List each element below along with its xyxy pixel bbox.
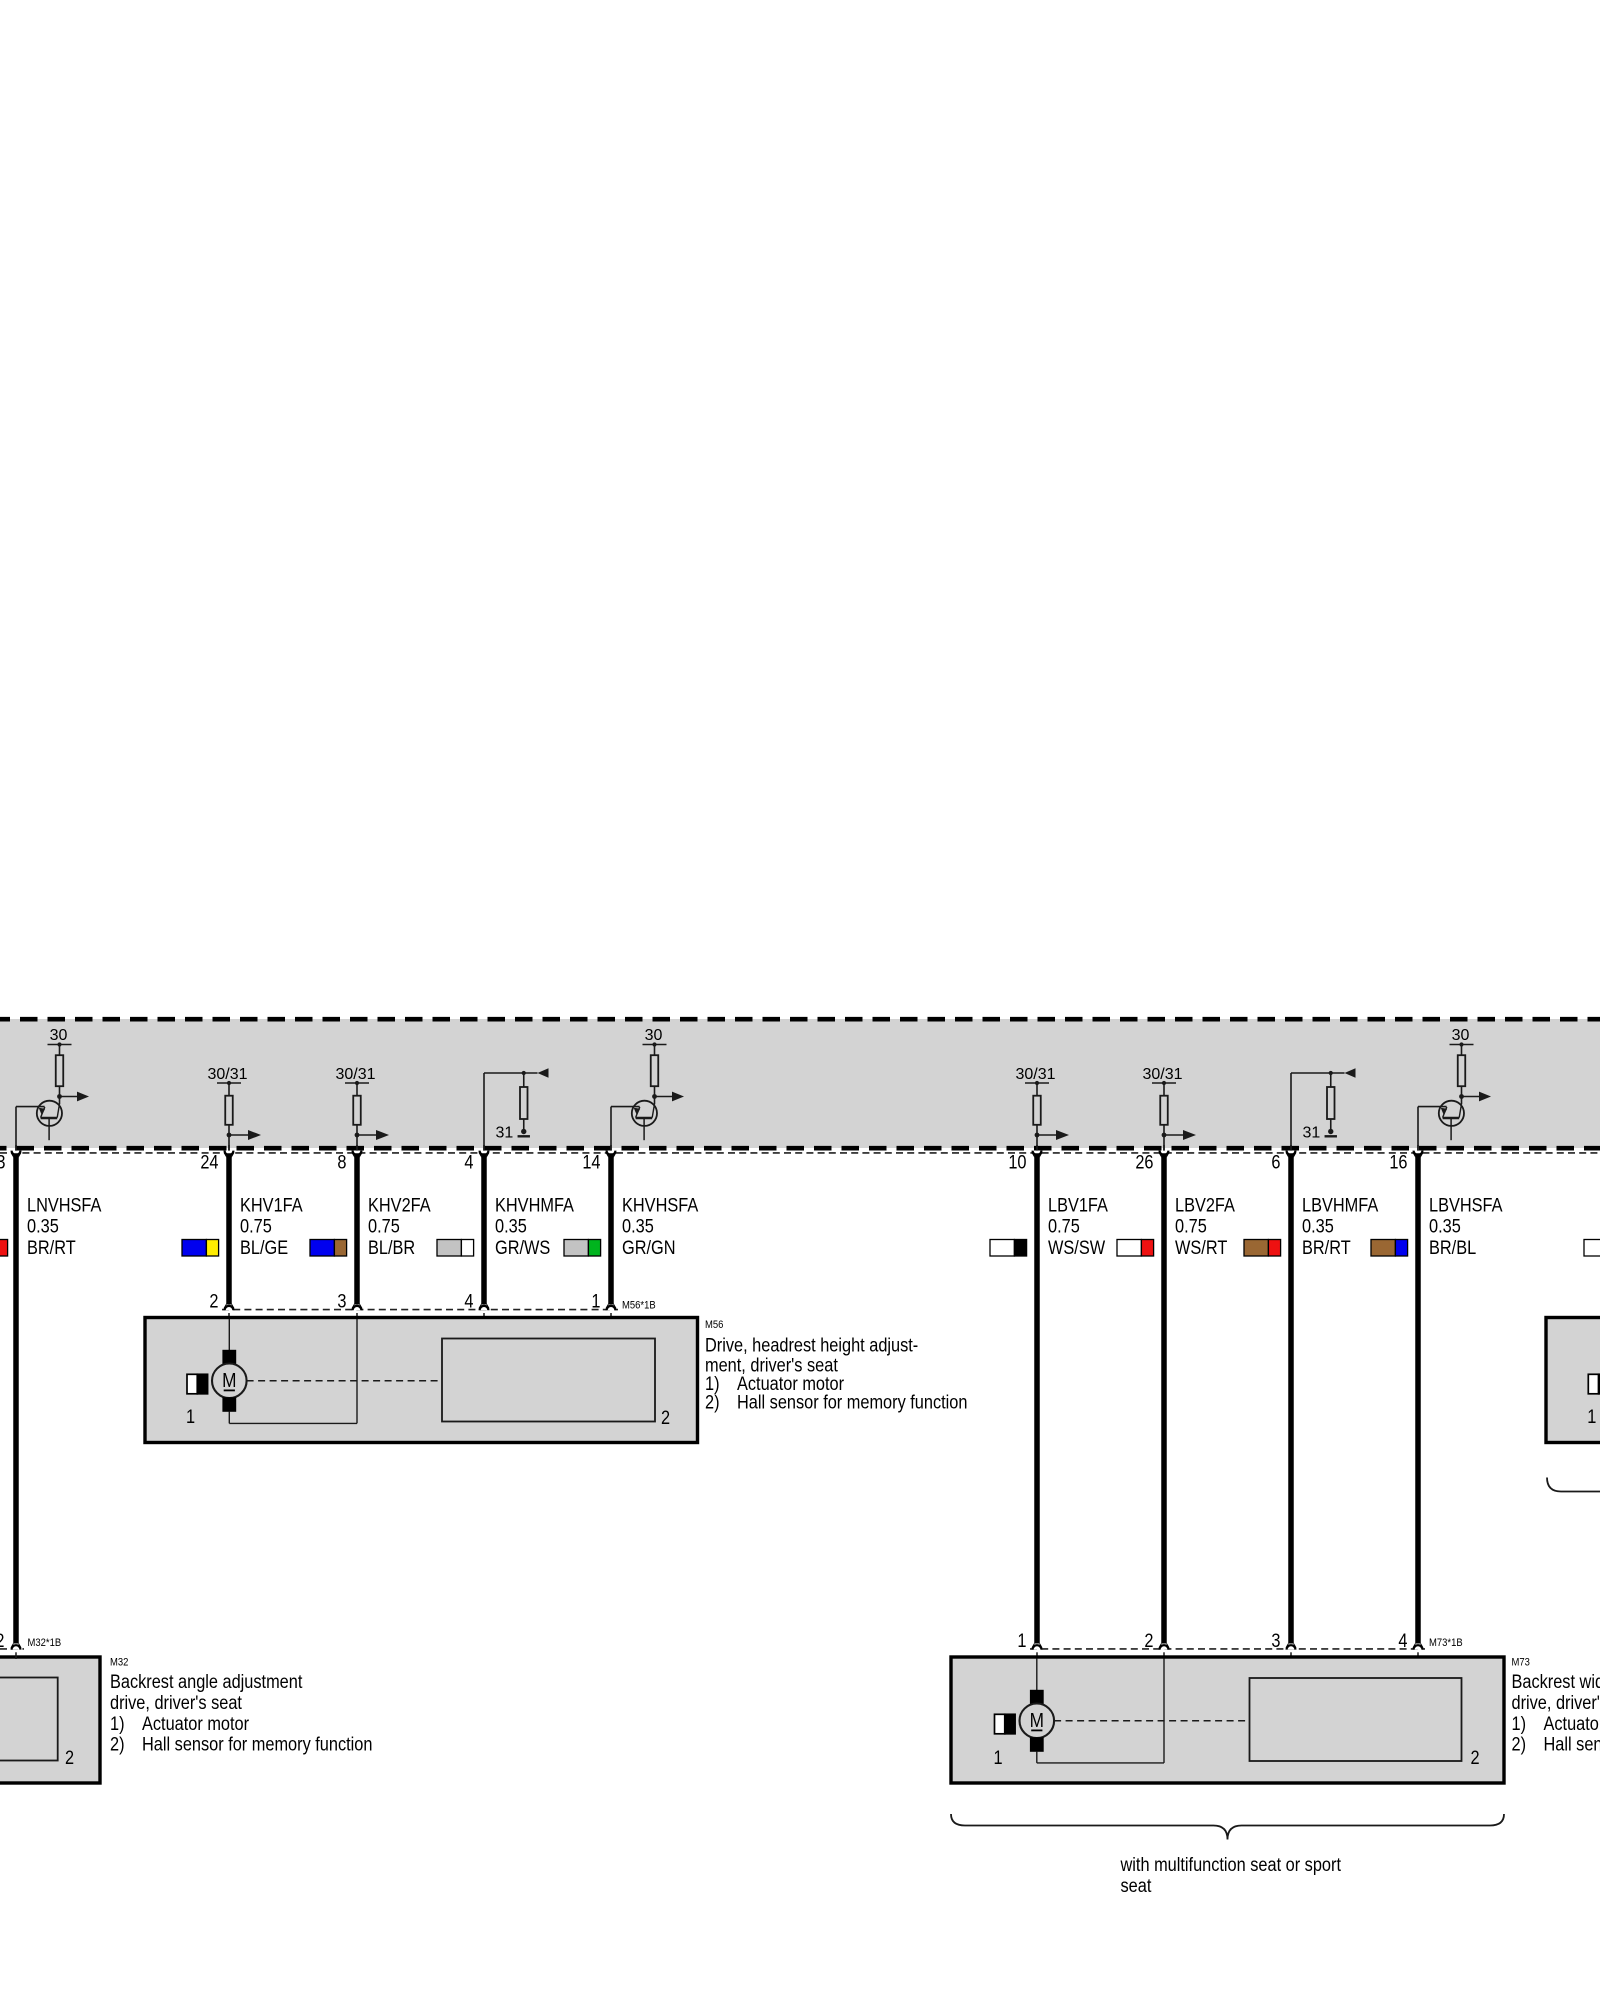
svg-text:KHV1FA: KHV1FA bbox=[240, 1194, 303, 1215]
svg-text:2): 2) bbox=[1512, 1734, 1527, 1755]
svg-text:1: 1 bbox=[591, 1290, 600, 1311]
svg-text:30/31: 30/31 bbox=[335, 1066, 375, 1083]
svg-text:WS/SW: WS/SW bbox=[1048, 1237, 1105, 1258]
svg-text:14: 14 bbox=[582, 1151, 600, 1172]
svg-text:0.75: 0.75 bbox=[1048, 1215, 1080, 1236]
svg-text:1): 1) bbox=[1512, 1713, 1527, 1734]
svg-text:2: 2 bbox=[661, 1407, 670, 1428]
svg-text:0.35: 0.35 bbox=[622, 1215, 654, 1236]
svg-text:drive, driver's seat: drive, driver's seat bbox=[110, 1692, 242, 1713]
svg-text:LBVHSFA: LBVHSFA bbox=[1429, 1194, 1503, 1215]
svg-text:M56: M56 bbox=[705, 1319, 724, 1331]
svg-text:Drive, headrest height adjust-: Drive, headrest height adjust- bbox=[705, 1334, 918, 1355]
svg-text:31: 31 bbox=[495, 1125, 513, 1142]
svg-text:KHV2FA: KHV2FA bbox=[368, 1194, 431, 1215]
svg-text:2: 2 bbox=[1144, 1630, 1153, 1651]
svg-text:LBV1FA: LBV1FA bbox=[1048, 1194, 1108, 1215]
svg-text:BR/RT: BR/RT bbox=[1302, 1237, 1351, 1258]
svg-text:seat: seat bbox=[1121, 1875, 1152, 1896]
svg-text:31: 31 bbox=[1302, 1125, 1320, 1142]
svg-text:Hall sensor for memory functio: Hall sensor for memory function bbox=[1544, 1734, 1600, 1755]
svg-text:4: 4 bbox=[464, 1290, 473, 1311]
svg-text:30/31: 30/31 bbox=[207, 1066, 247, 1083]
svg-text:LBV2FA: LBV2FA bbox=[1175, 1194, 1235, 1215]
svg-text:Actuator motor: Actuator motor bbox=[142, 1713, 249, 1734]
svg-text:6: 6 bbox=[1271, 1151, 1280, 1172]
svg-text:1): 1) bbox=[110, 1713, 125, 1734]
svg-text:24: 24 bbox=[200, 1151, 218, 1172]
svg-text:2): 2) bbox=[110, 1734, 125, 1755]
svg-text:0.35: 0.35 bbox=[1429, 1215, 1461, 1236]
svg-text:30: 30 bbox=[50, 1027, 68, 1044]
svg-text:3: 3 bbox=[0, 1151, 6, 1172]
svg-text:1: 1 bbox=[994, 1747, 1003, 1768]
svg-text:30/31: 30/31 bbox=[1015, 1066, 1055, 1083]
svg-text:2: 2 bbox=[65, 1747, 74, 1768]
svg-text:M56*1B: M56*1B bbox=[622, 1300, 656, 1312]
svg-text:KHVHMFA: KHVHMFA bbox=[495, 1194, 574, 1215]
svg-text:drive, driver's seat: drive, driver's seat bbox=[1512, 1692, 1600, 1713]
svg-text:4: 4 bbox=[464, 1151, 473, 1172]
svg-text:2): 2) bbox=[705, 1391, 720, 1412]
svg-text:2: 2 bbox=[0, 1630, 5, 1651]
svg-text:M: M bbox=[222, 1369, 236, 1392]
svg-text:LNVHSFA: LNVHSFA bbox=[27, 1194, 102, 1215]
svg-text:LBVHMFA: LBVHMFA bbox=[1302, 1194, 1378, 1215]
svg-text:BL/GE: BL/GE bbox=[240, 1237, 288, 1258]
svg-text:0.75: 0.75 bbox=[1175, 1215, 1207, 1236]
svg-text:1: 1 bbox=[186, 1406, 195, 1427]
svg-text:BR/BL: BR/BL bbox=[1429, 1237, 1476, 1258]
svg-text:30/31: 30/31 bbox=[1142, 1066, 1182, 1083]
svg-text:30: 30 bbox=[1452, 1027, 1470, 1044]
svg-text:BL/BR: BL/BR bbox=[368, 1237, 415, 1258]
svg-text:Hall sensor for memory functio: Hall sensor for memory function bbox=[142, 1734, 372, 1755]
svg-text:1: 1 bbox=[1587, 1406, 1596, 1427]
svg-text:0.35: 0.35 bbox=[495, 1215, 527, 1236]
svg-text:3: 3 bbox=[337, 1290, 346, 1311]
svg-text:KHVHSFA: KHVHSFA bbox=[622, 1194, 698, 1215]
svg-text:M73: M73 bbox=[1512, 1657, 1531, 1669]
svg-text:BR/RT: BR/RT bbox=[27, 1237, 76, 1258]
svg-text:Backrest angle adjustment: Backrest angle adjustment bbox=[110, 1671, 302, 1692]
svg-text:M32: M32 bbox=[110, 1657, 129, 1669]
svg-text:WS/RT: WS/RT bbox=[1175, 1237, 1227, 1258]
svg-text:M73*1B: M73*1B bbox=[1429, 1637, 1463, 1649]
svg-text:30: 30 bbox=[645, 1027, 663, 1044]
svg-text:0.75: 0.75 bbox=[240, 1215, 272, 1236]
svg-text:8: 8 bbox=[337, 1151, 346, 1172]
svg-text:2: 2 bbox=[1471, 1747, 1480, 1768]
svg-text:Actuator motor: Actuator motor bbox=[1544, 1713, 1600, 1734]
svg-text:M: M bbox=[1030, 1709, 1044, 1732]
svg-text:1: 1 bbox=[1017, 1630, 1026, 1651]
svg-text:with multifunction seat or spo: with multifunction seat or sport bbox=[1120, 1854, 1341, 1875]
svg-text:26: 26 bbox=[1135, 1151, 1153, 1172]
svg-text:10: 10 bbox=[1008, 1151, 1026, 1172]
svg-text:Hall sensor for memory functio: Hall sensor for memory function bbox=[737, 1391, 967, 1412]
svg-text:4: 4 bbox=[1398, 1630, 1407, 1651]
svg-text:Backrest width adjustment: Backrest width adjustment bbox=[1512, 1671, 1600, 1692]
svg-text:2: 2 bbox=[209, 1290, 218, 1311]
svg-text:0.75: 0.75 bbox=[368, 1215, 400, 1236]
svg-text:16: 16 bbox=[1389, 1151, 1407, 1172]
svg-text:0.35: 0.35 bbox=[1302, 1215, 1334, 1236]
svg-text:0.35: 0.35 bbox=[27, 1215, 59, 1236]
svg-text:GR/GN: GR/GN bbox=[622, 1237, 676, 1258]
svg-text:3: 3 bbox=[1271, 1630, 1280, 1651]
svg-text:M32*1B: M32*1B bbox=[28, 1637, 62, 1649]
svg-text:GR/WS: GR/WS bbox=[495, 1237, 550, 1258]
